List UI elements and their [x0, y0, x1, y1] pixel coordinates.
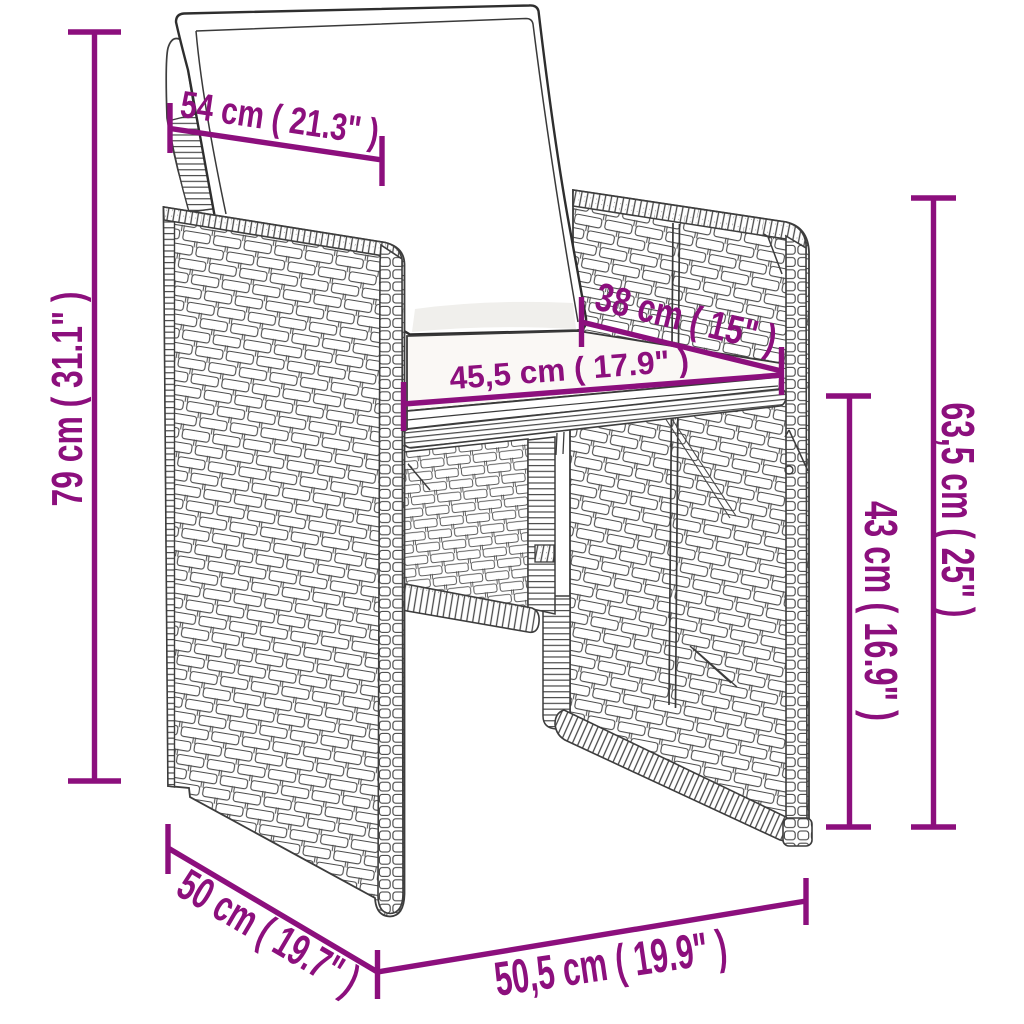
- svg-text:43 cm ( 16.9" ): 43 cm ( 16.9" ): [855, 501, 907, 721]
- svg-text:79 cm ( 31.1" ): 79 cm ( 31.1" ): [43, 292, 92, 507]
- svg-text:63,5 cm ( 25" ): 63,5 cm ( 25" ): [932, 403, 984, 618]
